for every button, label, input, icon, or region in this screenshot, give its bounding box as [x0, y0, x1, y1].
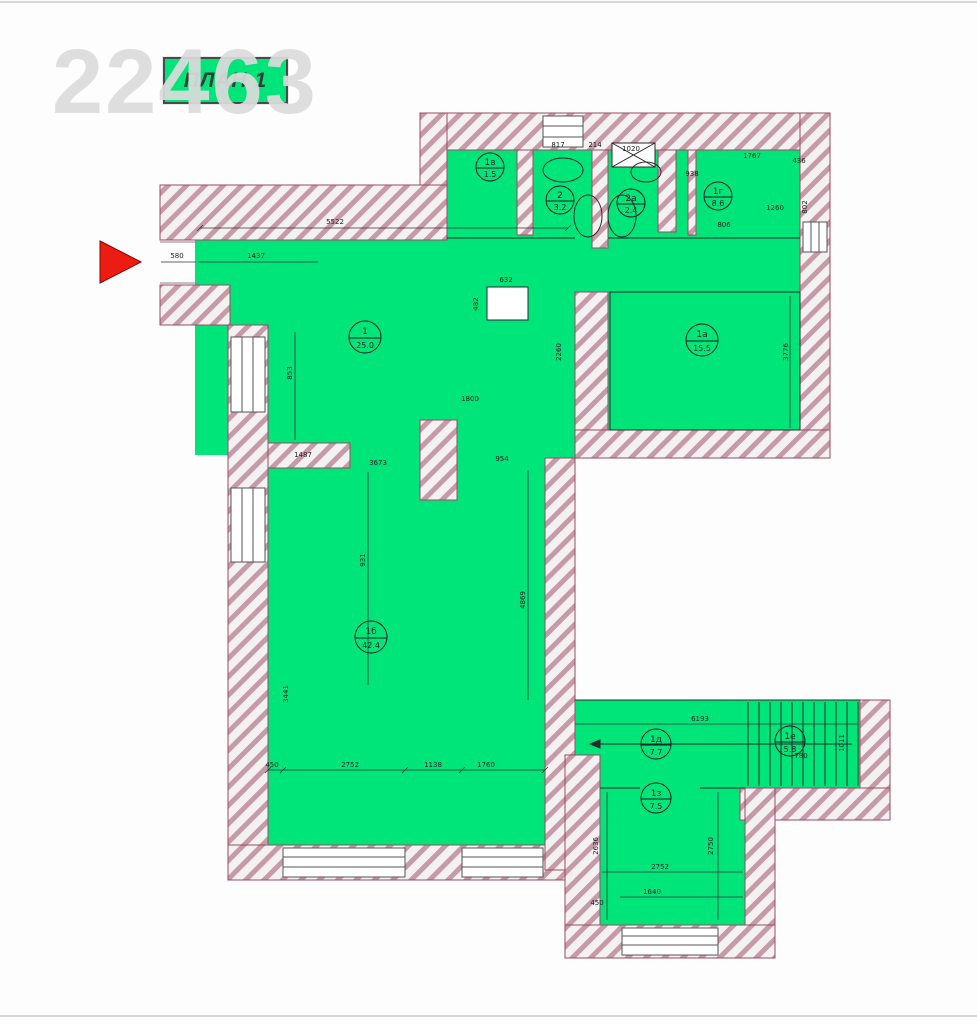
dimension-label: 2260	[555, 343, 563, 361]
dimension-label: 450	[265, 761, 278, 769]
dimension-label: 1800	[461, 395, 479, 403]
room-number: 1е	[784, 732, 796, 742]
room-1b-interior	[268, 455, 575, 845]
dimension-label: 806	[717, 221, 731, 229]
watermark-text: 22463	[52, 30, 318, 135]
dimension-label: 2752	[651, 863, 669, 871]
dimension-label: 2636	[592, 837, 600, 855]
window-room1z	[622, 928, 718, 955]
dimension-label: 954	[495, 455, 509, 463]
dimension-label: 580	[170, 252, 183, 260]
wall-bath-pier1	[517, 150, 533, 235]
dimension-label: 1767	[743, 152, 761, 160]
room-area: 42.4	[362, 641, 380, 650]
dimension-label: 482	[472, 297, 480, 310]
dimension-label: 5522	[326, 218, 344, 226]
floor-plan-drawing: 5522 1437 580 632 482 817 214 1020 1767 …	[0, 0, 977, 1024]
room-1z-interior	[600, 788, 745, 930]
room-number: 2	[557, 191, 563, 201]
dimension-label: 1487	[294, 451, 312, 459]
wall-bath-pier2	[592, 150, 608, 248]
room-area: 7.5	[650, 802, 663, 811]
room-number: 1г	[713, 187, 724, 197]
room-area: 25.0	[356, 341, 374, 350]
room-number: 2а	[625, 194, 636, 204]
dimension-label: 214	[588, 141, 602, 149]
window-bottom-1	[283, 848, 405, 877]
dimension-label: 450	[590, 899, 603, 907]
dimension-label: 1138	[424, 761, 442, 769]
wall-pier-center	[420, 420, 457, 500]
dimension-label: 3673	[369, 459, 387, 467]
floor-plan-page: ПЛАН 1 22463	[0, 0, 977, 1024]
column-box	[487, 287, 528, 320]
wall-bottom-upper-block	[575, 430, 830, 458]
wall-partition-1g	[688, 150, 696, 235]
wall-upper-left	[160, 185, 447, 240]
dimension-label: 931	[359, 553, 367, 566]
room-area: 2.4	[625, 206, 638, 215]
dimension-label: 802	[801, 200, 809, 213]
dimension-label: 436	[792, 157, 806, 165]
dimension-label: 938	[685, 170, 698, 178]
dimension-label: 1640	[643, 888, 661, 896]
window-left-1	[231, 337, 265, 412]
dimension-label: 6193	[691, 715, 709, 723]
dimension-label: 2752	[341, 761, 359, 769]
window-bottom-2	[462, 848, 543, 877]
room-area: 1.5	[484, 170, 497, 179]
window-right	[803, 222, 827, 252]
dimension-label: 3441	[282, 685, 290, 703]
dimension-label: 817	[551, 141, 564, 149]
wall-below-entry	[160, 285, 230, 325]
dimension-label: 632	[499, 276, 512, 284]
room-number: 1з	[651, 789, 662, 799]
room-number: 1а	[696, 330, 707, 340]
room-number: 1в	[484, 158, 495, 168]
room-number: 1д	[650, 735, 662, 745]
dimension-label: 1437	[247, 252, 265, 260]
dimension-label: 1760	[477, 761, 495, 769]
room-number: 1	[362, 327, 368, 337]
window-left-2	[231, 488, 265, 562]
room-area: 3.2	[554, 203, 567, 212]
dimension-label: 1011	[838, 734, 846, 752]
dimension-label: 4869	[519, 591, 527, 609]
dimension-label: 1260	[766, 204, 784, 212]
room-area: 8.6	[712, 199, 725, 208]
wall-left-of-1a	[575, 292, 608, 430]
dimension-label: 2750	[707, 837, 715, 855]
dimension-label: 1020	[622, 145, 640, 153]
dimension-label: 3776	[782, 343, 790, 361]
dimension-label: 853	[286, 366, 294, 379]
room-area: 15.5	[693, 344, 711, 353]
room-area: 7.7	[650, 748, 663, 757]
entry-arrow-icon	[100, 241, 141, 283]
room-area: 5.8	[784, 745, 797, 754]
wall-bath-pier3	[658, 150, 676, 232]
room-number: 1б	[365, 627, 377, 637]
